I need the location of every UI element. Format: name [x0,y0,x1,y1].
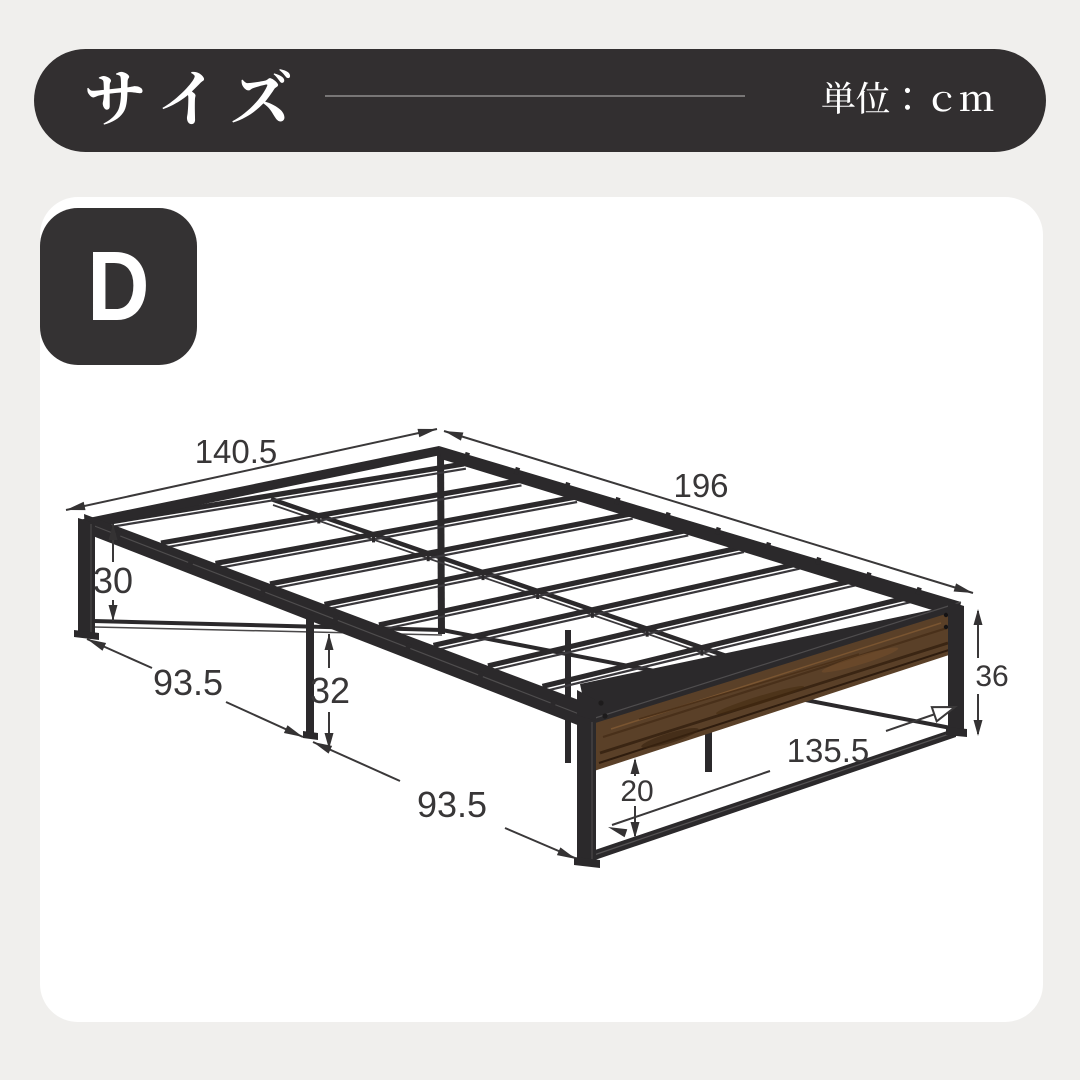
svg-text:93.5: 93.5 [153,662,223,703]
svg-text:36: 36 [975,660,1008,693]
svg-text:140.5: 140.5 [195,433,278,470]
svg-text:196: 196 [673,467,728,504]
svg-text:20: 20 [620,775,653,808]
svg-text:30: 30 [93,560,133,601]
svg-text:135.5: 135.5 [787,732,870,769]
svg-text:32: 32 [310,670,350,711]
svg-text:93.5: 93.5 [417,784,487,825]
